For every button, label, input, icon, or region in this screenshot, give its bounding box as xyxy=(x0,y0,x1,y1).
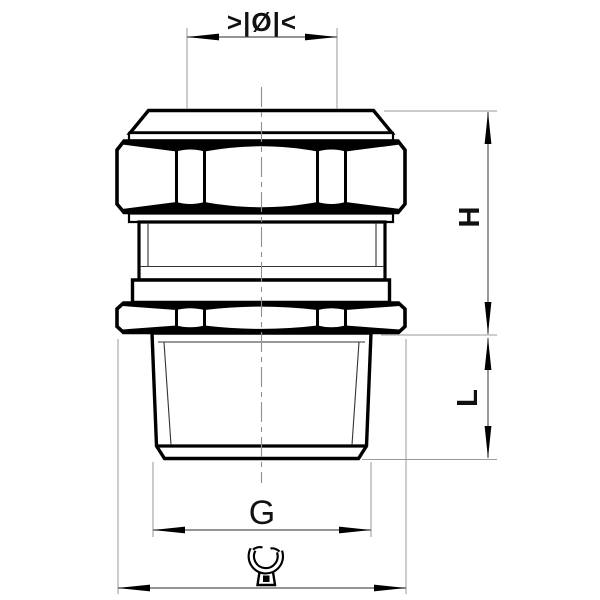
technical-drawing-canvas: >|Ø|< H L G xyxy=(0,0,600,600)
arrowhead-left xyxy=(118,585,150,592)
dim-thread-length: L xyxy=(362,338,497,460)
arrowhead-up xyxy=(485,112,492,144)
arrowhead-left xyxy=(187,34,219,41)
height-label: H xyxy=(454,207,486,228)
arrowhead-up xyxy=(485,338,492,370)
arrowhead-down xyxy=(485,302,492,334)
cable-gland-drawing: >|Ø|< H L G xyxy=(0,0,600,600)
clamping-range-label: >|Ø|< xyxy=(227,7,297,37)
arrowhead-right xyxy=(305,34,337,41)
arrowhead-left xyxy=(153,527,185,534)
wrench-icon xyxy=(251,547,280,585)
thread-size-label: G xyxy=(249,494,275,532)
arrowhead-right xyxy=(374,585,406,592)
arrowhead-right xyxy=(339,527,371,534)
arrowhead-down xyxy=(485,426,492,458)
thread-length-label: L xyxy=(452,389,484,407)
